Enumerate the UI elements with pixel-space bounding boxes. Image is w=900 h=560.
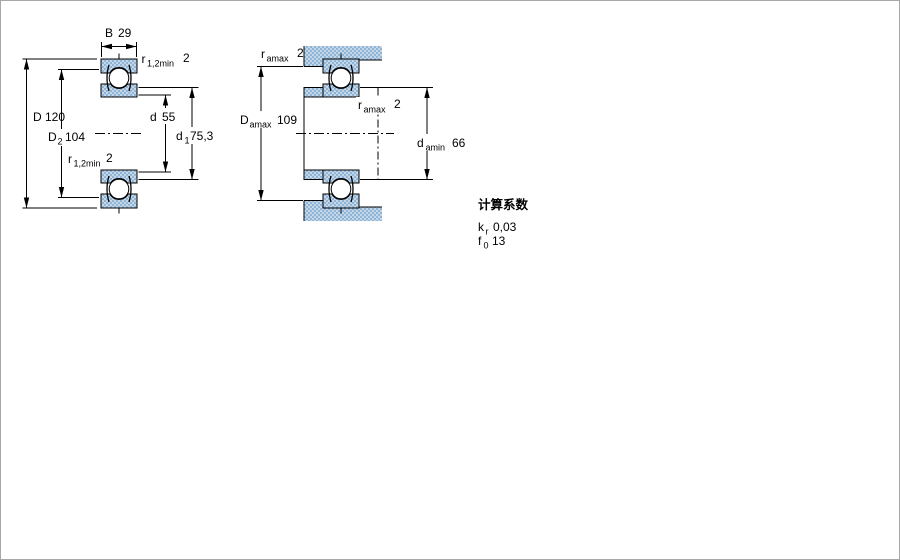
- dim-D-symbol: D: [33, 110, 42, 124]
- dim-r12-bottom-subscript: 1,2min: [74, 159, 101, 169]
- dim-d1-value: 75,3: [190, 129, 214, 143]
- dim-r12-bottom-value: 2: [106, 151, 113, 165]
- right-view-abutment-section: [296, 46, 394, 221]
- dim-ra-top-subscript: amax: [267, 54, 290, 64]
- dim-r12-bottom-symbol: r: [68, 152, 72, 166]
- dim-d-extension-lines: [139, 95, 172, 172]
- dim-D2-subscript: 2: [58, 137, 63, 147]
- dim-D2-symbol: D: [48, 130, 57, 144]
- dim-D-value: 120: [45, 110, 65, 124]
- dim-ra-mid-value: 2: [394, 97, 401, 111]
- factor-kr-symbol: k: [478, 220, 485, 234]
- dim-Da-value: 109: [277, 113, 297, 127]
- left-ball-bottom: [109, 179, 129, 199]
- left-view-bearing-section: [95, 54, 143, 214]
- dim-r12-top-subscript: 1,2min: [147, 59, 174, 69]
- dim-r12-top-symbol: r: [142, 52, 146, 66]
- dim-B-symbol: B: [105, 26, 113, 40]
- factor-f0-subscript: 0: [484, 241, 489, 251]
- technical-drawing-page: B 29 r 1,2min 2 D 120 D 2 104 r 1,2min 2…: [0, 0, 900, 560]
- right-ball-bottom: [331, 179, 351, 199]
- dim-d1-symbol: d: [176, 129, 183, 143]
- housing-top-slab: [304, 46, 382, 60]
- factor-kr-subscript: r: [486, 227, 489, 237]
- shaft-shoulder-top: [304, 88, 323, 98]
- dim-ra-mid-symbol: r: [358, 98, 362, 112]
- dim-da-symbol: d: [417, 136, 424, 150]
- shaft-shoulder-bottom: [304, 170, 323, 180]
- dim-da-subscript: amin: [426, 143, 446, 153]
- dim-r12-top-value: 2: [183, 51, 190, 65]
- factor-f0-symbol: f: [478, 234, 482, 248]
- left-ball-top: [109, 68, 129, 88]
- dim-Da-subscript: amax: [250, 120, 273, 130]
- dim-Da-symbol: D: [240, 113, 249, 127]
- dim-da-value: 66: [452, 136, 466, 150]
- dim-d1-subscript: 1: [185, 136, 190, 146]
- dim-ra-top-value: 2: [297, 46, 304, 60]
- bearing-drawing-svg: B 29 r 1,2min 2 D 120 D 2 104 r 1,2min 2…: [0, 0, 900, 560]
- calculation-factors-title: 计算系数: [478, 197, 529, 212]
- housing-bottom-shoulder: [304, 201, 323, 208]
- factor-kr-value: 0,03: [493, 220, 517, 234]
- housing-top-shoulder: [304, 60, 323, 67]
- dim-B-value: 29: [118, 26, 132, 40]
- dim-d-value: 55: [162, 110, 176, 124]
- dim-ra-mid-subscript: amax: [364, 105, 387, 115]
- right-ball-top: [331, 68, 351, 88]
- factor-f0-value: 13: [492, 234, 506, 248]
- dim-D2-value: 104: [65, 130, 85, 144]
- dim-ra-top-symbol: r: [261, 47, 265, 61]
- housing-bottom-slab: [304, 207, 382, 221]
- dim-d-symbol: d: [150, 110, 157, 124]
